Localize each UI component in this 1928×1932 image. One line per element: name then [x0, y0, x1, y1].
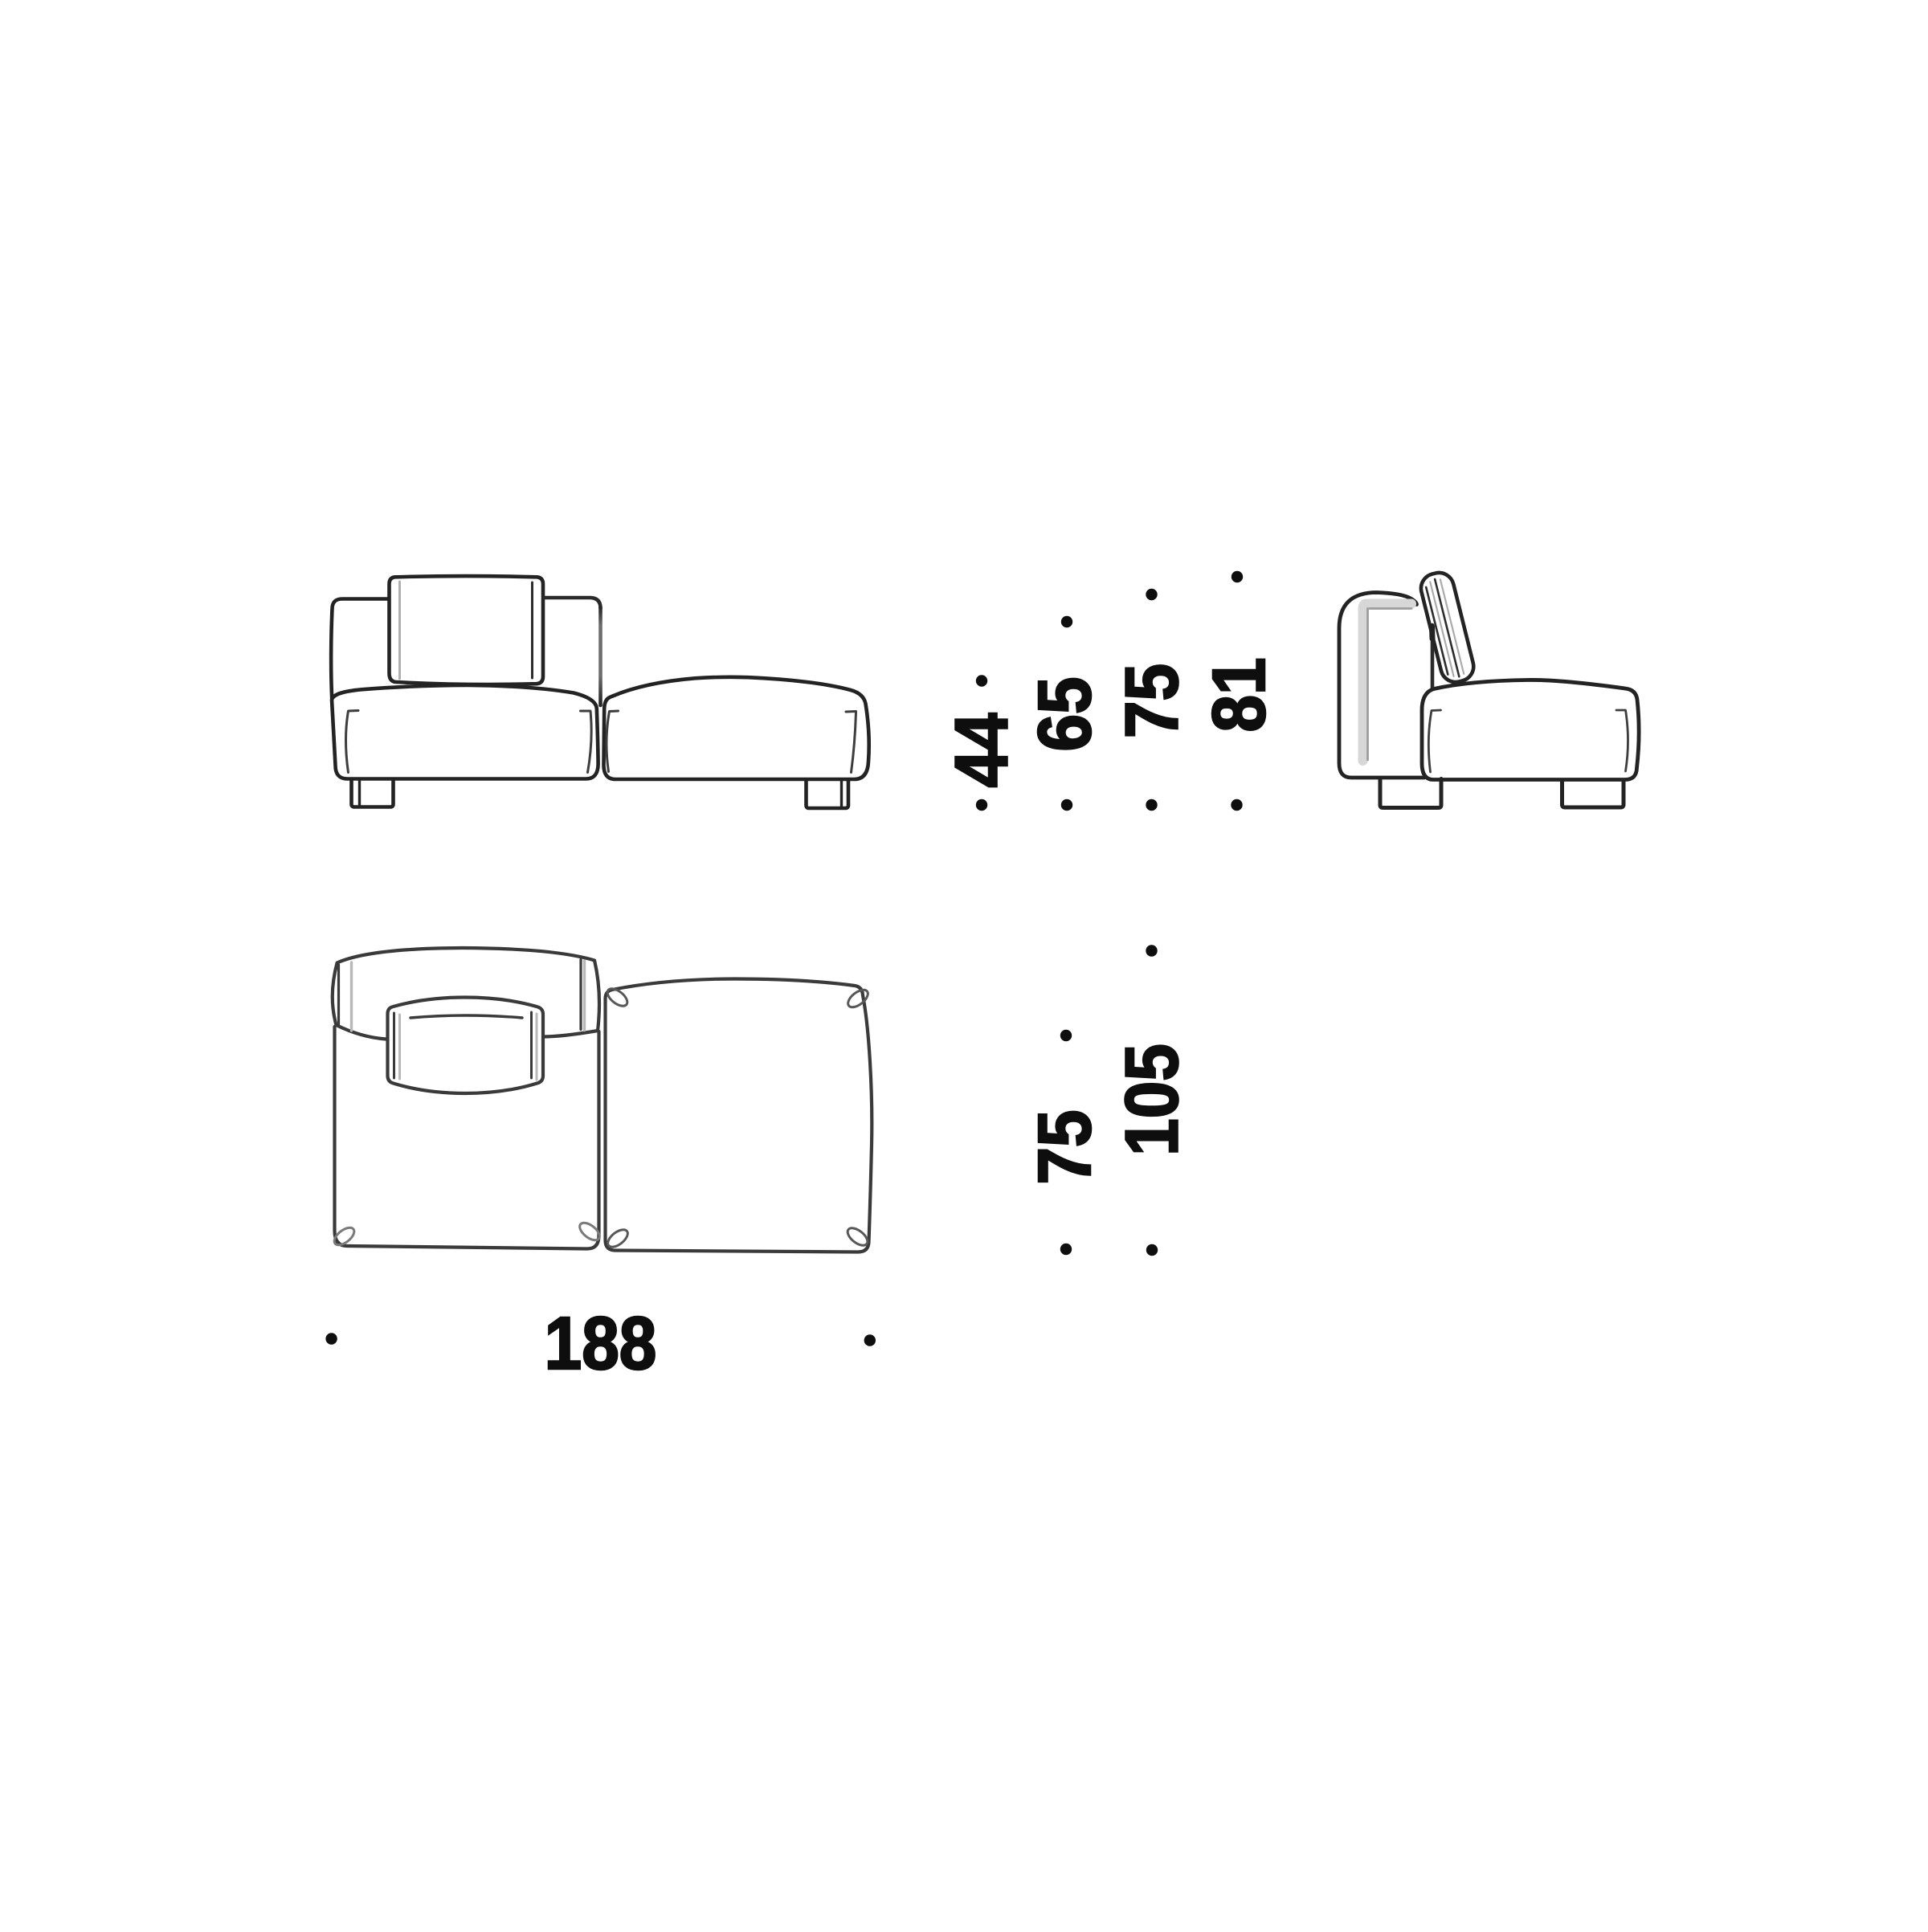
svg-text:75: 75 — [1109, 664, 1193, 738]
svg-text:188: 188 — [545, 1301, 657, 1385]
svg-text:105: 105 — [1109, 1044, 1193, 1156]
svg-text:65: 65 — [1023, 676, 1106, 751]
svg-text:44: 44 — [939, 713, 1023, 787]
svg-text:81: 81 — [1197, 657, 1281, 732]
svg-text:75: 75 — [1023, 1109, 1106, 1184]
